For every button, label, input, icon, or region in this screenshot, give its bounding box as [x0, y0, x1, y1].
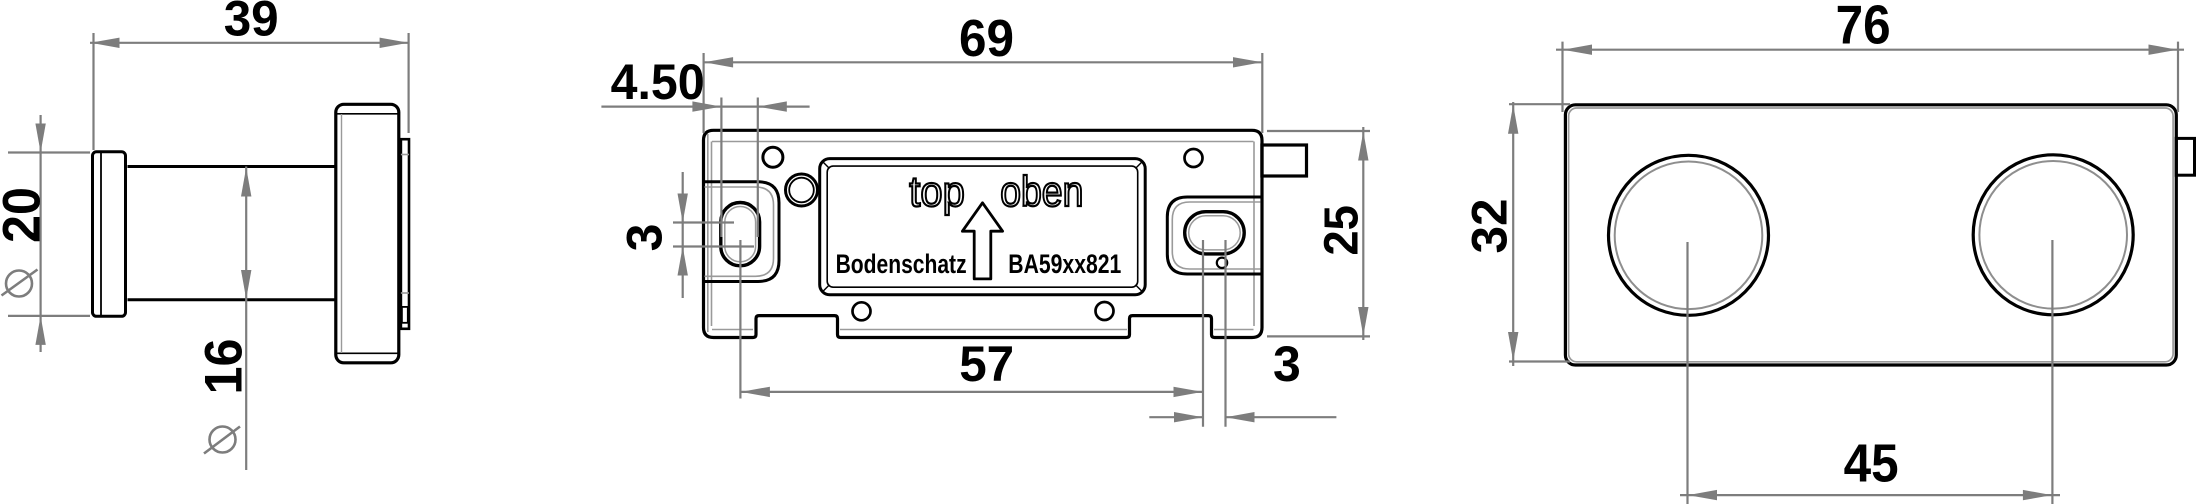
svg-text:4.50: 4.50: [611, 54, 705, 110]
svg-text:oben: oben: [1000, 168, 1083, 216]
svg-text:57: 57: [959, 336, 1014, 392]
svg-text:BA59xx821: BA59xx821: [1008, 249, 1121, 279]
svg-text:top: top: [909, 168, 965, 216]
svg-text:39: 39: [224, 0, 279, 47]
svg-text:32: 32: [1462, 199, 1518, 254]
svg-text:3: 3: [617, 224, 673, 252]
svg-text:3: 3: [1273, 336, 1301, 392]
svg-text:20: 20: [0, 187, 52, 243]
svg-text:16: 16: [195, 339, 254, 395]
svg-text:69: 69: [959, 10, 1014, 68]
svg-text:76: 76: [1836, 0, 1891, 56]
svg-text:Bodenschatz: Bodenschatz: [836, 249, 967, 279]
svg-text:25: 25: [1316, 205, 1369, 256]
svg-text:45: 45: [1844, 434, 1899, 494]
